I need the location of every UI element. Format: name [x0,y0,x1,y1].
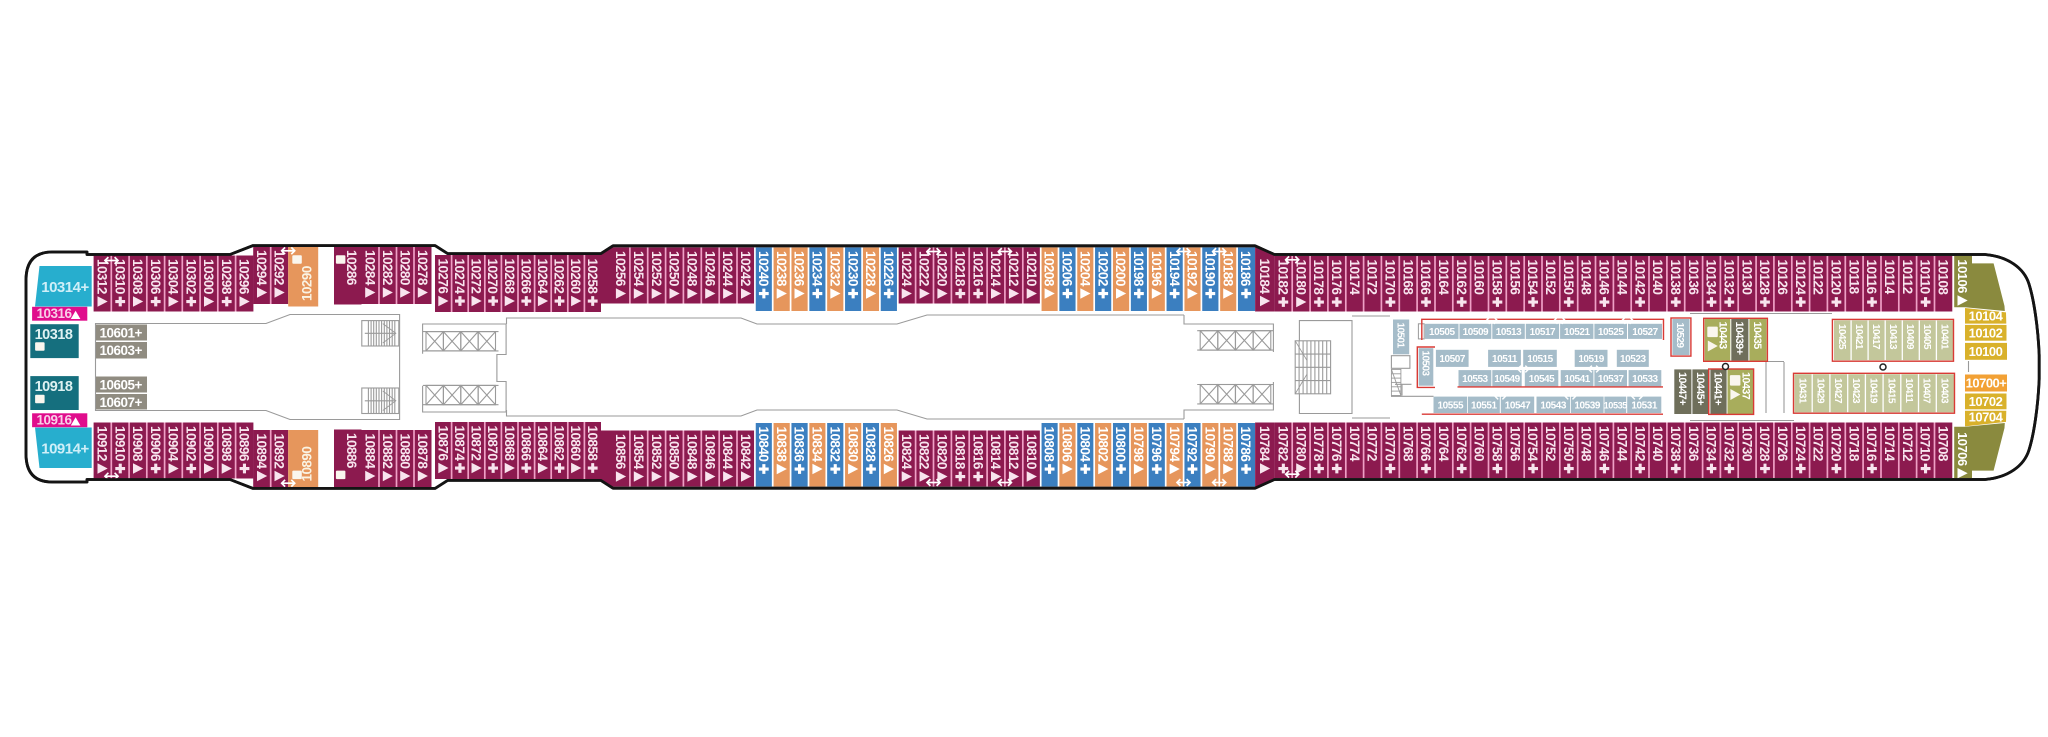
svg-text:10142: 10142 [1632,260,1647,295]
svg-text:10204: 10204 [1078,251,1093,287]
svg-text:10726: 10726 [1775,426,1790,462]
svg-text:10306: 10306 [148,259,163,295]
svg-text:10268: 10268 [502,259,517,295]
svg-text:10190: 10190 [1203,251,1218,286]
svg-text:10802: 10802 [1095,427,1110,462]
svg-text:10736: 10736 [1686,426,1701,462]
svg-text:10150: 10150 [1561,260,1576,295]
svg-text:10527: 10527 [1632,327,1658,338]
svg-text:10539: 10539 [1574,401,1600,412]
svg-text:10710: 10710 [1918,426,1933,461]
svg-text:10601+: 10601+ [100,326,143,341]
svg-text:10401: 10401 [1938,324,1949,350]
svg-text:10110: 10110 [1918,260,1933,294]
svg-text:10607+: 10607+ [100,395,143,410]
svg-text:10252: 10252 [649,251,664,286]
svg-text:10868: 10868 [502,426,517,462]
svg-text:10170: 10170 [1383,260,1398,295]
svg-text:10884: 10884 [362,434,377,470]
svg-text:10429: 10429 [1814,378,1825,404]
svg-text:10732: 10732 [1722,426,1737,461]
svg-text:10838: 10838 [774,427,789,463]
svg-text:10415: 10415 [1885,378,1896,404]
svg-text:10830: 10830 [845,427,860,462]
svg-text:10756: 10756 [1507,426,1522,462]
svg-text:10796: 10796 [1149,427,1164,463]
svg-text:10880: 10880 [397,434,412,469]
svg-text:10174: 10174 [1347,260,1362,296]
svg-text:10188: 10188 [1220,251,1235,287]
svg-text:10120: 10120 [1829,260,1844,295]
svg-text:10238: 10238 [774,251,789,287]
svg-text:10834: 10834 [810,427,825,463]
svg-text:10132: 10132 [1722,260,1737,295]
svg-text:10776: 10776 [1329,426,1344,462]
svg-text:10230: 10230 [845,251,860,286]
svg-text:10712: 10712 [1900,426,1915,461]
svg-text:10403: 10403 [1938,378,1949,404]
svg-text:10108: 10108 [1936,260,1951,296]
svg-text:10515: 10515 [1527,354,1553,365]
svg-text:10850: 10850 [667,434,682,469]
svg-text:10256: 10256 [613,251,628,287]
svg-text:10280: 10280 [397,250,412,285]
svg-text:10894: 10894 [254,434,269,470]
svg-text:10118: 10118 [1846,260,1861,295]
svg-text:10758: 10758 [1490,426,1505,462]
svg-text:10754: 10754 [1525,426,1540,462]
svg-text:10104: 10104 [1969,308,2004,323]
svg-text:10196: 10196 [1149,251,1164,287]
svg-text:10244: 10244 [720,251,735,287]
svg-text:10417: 10417 [1870,324,1881,350]
svg-text:10178: 10178 [1311,260,1326,296]
svg-text:10844: 10844 [720,434,735,470]
svg-text:10146: 10146 [1597,260,1612,296]
svg-text:10748: 10748 [1579,426,1594,462]
svg-text:10172: 10172 [1365,260,1380,295]
svg-text:10864: 10864 [535,426,550,462]
svg-text:10130: 10130 [1739,260,1754,295]
svg-text:10798: 10798 [1131,427,1146,463]
svg-text:10435: 10435 [1751,322,1763,350]
svg-text:10866: 10866 [518,426,533,462]
svg-text:10533: 10533 [1632,374,1658,385]
svg-text:10294: 10294 [254,250,269,286]
svg-text:10828: 10828 [863,427,878,463]
svg-text:10914+: 10914+ [41,440,89,457]
svg-text:10886: 10886 [344,433,359,469]
svg-text:10862: 10862 [552,426,567,461]
svg-text:10782: 10782 [1276,426,1291,461]
svg-text:10902: 10902 [183,426,198,461]
svg-text:10509: 10509 [1463,327,1489,338]
svg-text:10240: 10240 [756,251,771,286]
svg-text:10154: 10154 [1525,260,1540,296]
svg-text:10274: 10274 [452,259,467,295]
svg-text:10718: 10718 [1846,426,1861,462]
svg-text:10254: 10254 [631,251,646,287]
svg-text:10262: 10262 [552,259,567,294]
svg-text:10184: 10184 [1257,259,1272,295]
svg-text:10541: 10541 [1564,374,1590,385]
svg-text:10264: 10264 [535,259,550,295]
svg-text:10292: 10292 [272,250,287,285]
svg-text:10840: 10840 [756,427,771,462]
svg-text:10545: 10545 [1529,374,1555,385]
svg-text:10700+: 10700+ [1966,376,2008,391]
svg-text:10856: 10856 [613,434,628,470]
svg-text:10772: 10772 [1365,426,1380,461]
svg-text:10314+: 10314+ [41,279,89,296]
svg-text:10874: 10874 [452,426,467,462]
svg-text:10806: 10806 [1060,427,1075,463]
svg-text:10896: 10896 [237,426,252,462]
svg-text:10228: 10228 [863,251,878,287]
svg-text:10282: 10282 [380,250,395,285]
svg-text:10852: 10852 [649,434,664,469]
svg-text:10876: 10876 [435,426,450,462]
svg-text:10878: 10878 [415,434,430,470]
svg-text:10220: 10220 [935,251,950,286]
svg-text:10812: 10812 [1006,434,1021,469]
svg-text:10529: 10529 [1674,323,1685,349]
svg-text:10810: 10810 [1024,434,1039,469]
svg-text:10182: 10182 [1276,260,1291,295]
svg-text:10846: 10846 [702,434,717,470]
svg-text:10836: 10836 [792,427,807,463]
svg-text:10134: 10134 [1704,260,1719,296]
svg-text:10421: 10421 [1853,324,1864,350]
svg-text:10126: 10126 [1775,260,1790,296]
svg-text:10180: 10180 [1293,260,1308,295]
svg-text:10447+: 10447+ [1676,372,1688,405]
svg-text:10272: 10272 [469,259,484,294]
svg-text:10409: 10409 [1904,324,1915,350]
svg-text:10296: 10296 [237,259,252,295]
svg-text:10413: 10413 [1887,324,1898,350]
svg-text:10202: 10202 [1095,251,1110,286]
svg-text:10892: 10892 [272,434,287,469]
svg-text:10176: 10176 [1329,260,1344,296]
svg-text:10908: 10908 [130,426,145,462]
svg-text:10158: 10158 [1490,260,1505,296]
svg-text:10730: 10730 [1739,426,1754,461]
svg-text:10312: 10312 [95,259,110,294]
svg-text:10226: 10226 [881,251,896,287]
svg-text:10441+: 10441+ [1712,372,1724,405]
svg-text:10160: 10160 [1472,260,1487,295]
svg-text:10553: 10553 [1462,374,1488,385]
svg-text:10818: 10818 [952,434,967,470]
svg-text:10162: 10162 [1454,260,1469,295]
svg-text:10122: 10122 [1811,260,1826,295]
svg-text:10106: 10106 [1955,259,1970,293]
svg-text:10505: 10505 [1429,327,1455,338]
svg-text:10898: 10898 [219,426,234,462]
svg-text:10824: 10824 [899,434,914,470]
svg-text:10860: 10860 [568,426,583,461]
svg-text:10507: 10507 [1439,354,1465,365]
svg-text:10525: 10525 [1598,327,1624,338]
svg-text:10250: 10250 [667,251,682,286]
svg-text:10551: 10551 [1471,401,1497,412]
svg-text:10794: 10794 [1167,427,1182,463]
svg-text:10164: 10164 [1436,260,1451,296]
svg-text:10114: 10114 [1882,260,1897,295]
svg-text:10266: 10266 [518,259,533,295]
svg-text:10198: 10198 [1131,251,1146,287]
svg-text:10519: 10519 [1578,354,1604,365]
svg-text:10300: 10300 [201,259,216,294]
svg-text:10501: 10501 [1394,323,1405,349]
svg-text:10816: 10816 [970,434,985,470]
svg-text:10102: 10102 [1969,325,2003,340]
svg-text:10890: 10890 [299,447,314,482]
svg-text:10832: 10832 [827,427,842,462]
svg-text:10100: 10100 [1969,344,2003,359]
svg-text:10738: 10738 [1668,426,1683,462]
svg-text:10740: 10740 [1650,426,1665,461]
svg-text:10503: 10503 [1419,351,1430,377]
svg-text:10286: 10286 [344,250,359,286]
svg-text:10200: 10200 [1113,251,1128,286]
svg-text:10423: 10423 [1850,378,1861,404]
svg-text:10236: 10236 [792,251,807,287]
svg-text:10284: 10284 [362,250,377,286]
svg-text:10762: 10762 [1454,426,1469,461]
svg-text:10848: 10848 [685,434,700,470]
svg-text:10445+: 10445+ [1694,372,1706,405]
svg-text:10800: 10800 [1113,427,1128,462]
svg-text:10780: 10780 [1293,426,1308,461]
svg-text:10192: 10192 [1185,251,1200,286]
svg-text:10419: 10419 [1868,378,1879,404]
svg-text:10186: 10186 [1238,251,1253,287]
svg-text:10543: 10543 [1540,401,1566,412]
svg-text:10405: 10405 [1921,324,1932,350]
svg-text:10842: 10842 [738,434,753,469]
svg-text:10870: 10870 [485,426,500,461]
svg-text:10214: 10214 [988,251,1003,287]
svg-text:10278: 10278 [415,250,430,286]
svg-text:10744: 10744 [1614,426,1629,462]
svg-text:10535: 10535 [1604,401,1628,411]
svg-text:10770: 10770 [1383,426,1398,461]
svg-text:10234: 10234 [810,251,825,287]
svg-text:10531: 10531 [1631,401,1657,412]
svg-text:10858: 10858 [585,426,600,462]
svg-text:10156: 10156 [1507,260,1522,296]
svg-text:10804: 10804 [1078,427,1093,463]
svg-text:10750: 10750 [1561,426,1576,461]
svg-text:10555: 10555 [1438,401,1464,412]
svg-text:10786: 10786 [1238,427,1253,463]
svg-text:10788: 10788 [1220,427,1235,463]
svg-text:10904: 10904 [166,426,181,462]
svg-text:10128: 10128 [1757,260,1772,296]
svg-text:10716: 10716 [1864,426,1879,462]
svg-text:10276: 10276 [435,259,450,295]
svg-text:10246: 10246 [702,251,717,287]
svg-text:10537: 10537 [1598,374,1624,385]
svg-text:10511: 10511 [1492,354,1518,365]
svg-text:10523: 10523 [1620,354,1646,365]
svg-text:10728: 10728 [1757,426,1772,462]
svg-text:10232: 10232 [827,251,842,286]
svg-text:10427: 10427 [1832,378,1843,404]
svg-text:10148: 10148 [1579,260,1594,296]
svg-text:10136: 10136 [1686,260,1701,296]
svg-text:10290: 10290 [299,266,314,301]
svg-text:10768: 10768 [1400,426,1415,462]
svg-text:10822: 10822 [917,434,932,469]
svg-text:10760: 10760 [1472,426,1487,461]
svg-text:10304: 10304 [166,259,181,295]
svg-text:10764: 10764 [1436,426,1451,462]
svg-text:10774: 10774 [1347,426,1362,462]
svg-text:10138: 10138 [1668,260,1683,296]
svg-text:10820: 10820 [935,434,950,469]
svg-text:10224: 10224 [899,251,914,287]
svg-text:10112: 10112 [1900,260,1915,294]
svg-text:10517: 10517 [1530,327,1556,338]
svg-text:10808: 10808 [1042,427,1057,463]
svg-text:10778: 10778 [1311,426,1326,462]
svg-text:10270: 10270 [485,259,500,294]
svg-text:10194: 10194 [1167,251,1182,287]
svg-text:10437: 10437 [1740,372,1752,400]
svg-text:10425: 10425 [1836,324,1847,350]
svg-text:10790: 10790 [1203,427,1218,462]
svg-text:10918: 10918 [35,379,73,395]
svg-text:10208: 10208 [1042,251,1057,287]
svg-text:10318: 10318 [35,327,73,343]
svg-text:10547: 10547 [1505,401,1531,412]
svg-text:10144: 10144 [1614,260,1629,296]
svg-text:10308: 10308 [130,259,145,295]
svg-text:10906: 10906 [148,426,163,462]
svg-text:10248: 10248 [685,251,700,287]
svg-text:10166: 10166 [1418,260,1433,296]
svg-text:10603+: 10603+ [100,343,143,358]
svg-text:10746: 10746 [1597,426,1612,462]
svg-text:10702: 10702 [1969,394,2003,409]
svg-text:10724: 10724 [1793,426,1808,462]
svg-text:10742: 10742 [1632,426,1647,461]
svg-text:10714: 10714 [1882,426,1897,462]
svg-text:10316: 10316 [37,306,73,321]
svg-text:10212: 10212 [1006,251,1021,286]
svg-text:10443: 10443 [1717,322,1729,350]
svg-text:10152: 10152 [1543,260,1558,295]
svg-text:10912: 10912 [95,426,110,461]
svg-text:10910: 10910 [112,426,127,461]
svg-text:10826: 10826 [881,427,896,463]
svg-text:10140: 10140 [1650,260,1665,295]
svg-text:10513: 10513 [1496,327,1522,338]
svg-text:10722: 10722 [1811,426,1826,461]
svg-text:10168: 10168 [1400,260,1415,296]
svg-text:10260: 10260 [568,259,583,294]
svg-text:10792: 10792 [1185,427,1200,462]
svg-text:10210: 10210 [1024,251,1039,286]
svg-text:10784: 10784 [1257,426,1272,462]
svg-text:10708: 10708 [1936,426,1951,462]
svg-text:10407: 10407 [1921,378,1932,404]
svg-text:10242: 10242 [738,251,753,286]
svg-text:10302: 10302 [183,259,198,294]
svg-text:10206: 10206 [1060,251,1075,287]
svg-text:10258: 10258 [585,259,600,295]
svg-text:10916: 10916 [37,413,73,428]
svg-text:10882: 10882 [380,434,395,469]
svg-text:10298: 10298 [219,259,234,295]
svg-text:10521: 10521 [1564,327,1590,338]
svg-text:10549: 10549 [1494,374,1520,385]
svg-text:10900: 10900 [201,426,216,461]
svg-text:10124: 10124 [1793,260,1808,296]
svg-text:10734: 10734 [1704,426,1719,462]
svg-text:10720: 10720 [1829,426,1844,461]
svg-text:10218: 10218 [952,251,967,287]
svg-text:10411: 10411 [1903,378,1914,403]
svg-text:10310: 10310 [112,259,127,294]
svg-text:10814: 10814 [988,434,1003,470]
svg-text:10216: 10216 [970,251,985,287]
svg-text:10431: 10431 [1797,378,1808,404]
svg-text:10222: 10222 [917,251,932,286]
svg-text:10704: 10704 [1969,410,2004,425]
svg-text:10116: 10116 [1864,260,1879,295]
svg-text:10605+: 10605+ [100,378,143,393]
svg-text:10439+: 10439+ [1733,322,1745,355]
svg-text:10752: 10752 [1543,426,1558,461]
svg-text:10854: 10854 [631,434,646,470]
svg-text:10766: 10766 [1418,426,1433,462]
svg-text:10872: 10872 [469,426,484,461]
svg-text:10706: 10706 [1955,432,1970,466]
